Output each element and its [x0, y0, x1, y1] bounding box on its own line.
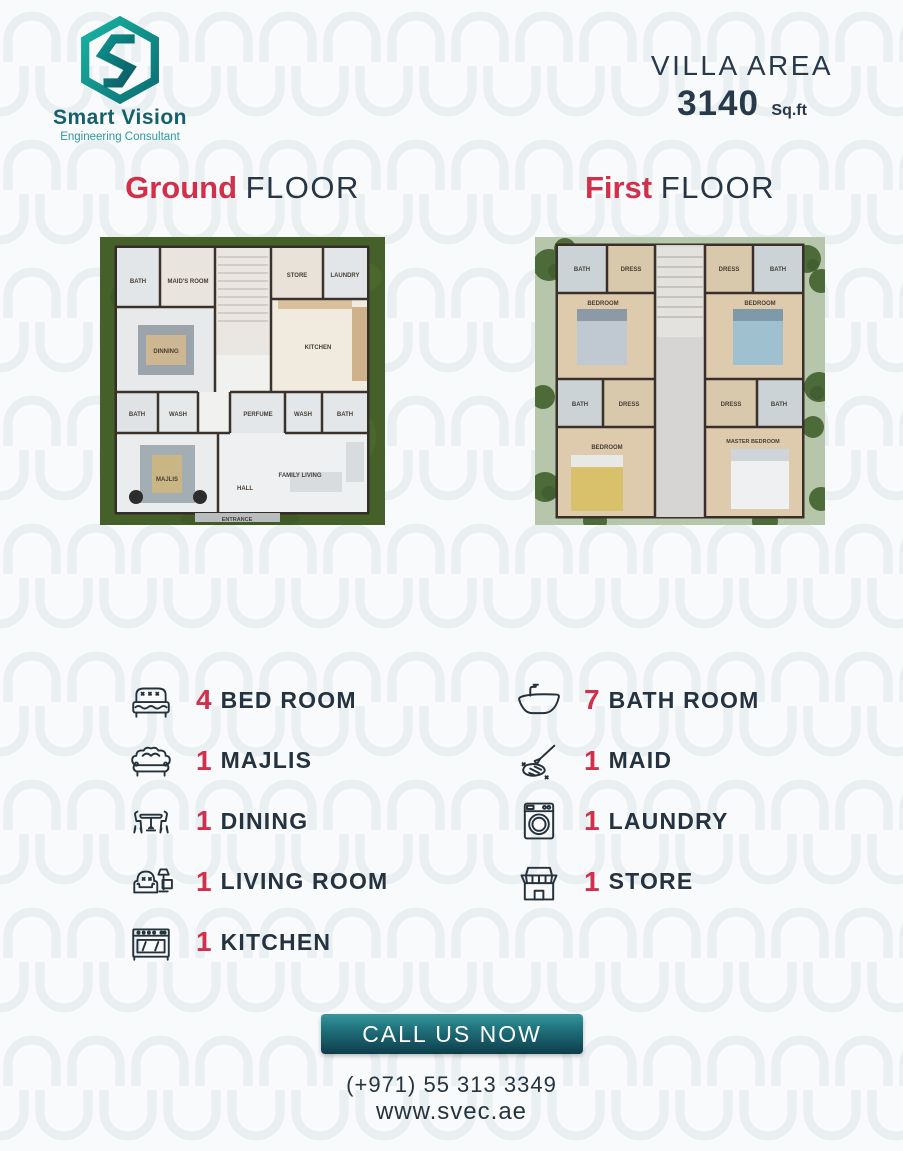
feature-label: DINING: [221, 808, 309, 835]
room-label: WASH: [294, 412, 312, 418]
brand-name: Smart Vision: [30, 106, 210, 130]
feature-count: 1: [196, 805, 212, 837]
room-label: BATH: [574, 267, 590, 273]
first-floor-plan: BATH DRESS DRESS BATH BEDROOM BEDROOM BA…: [535, 237, 825, 525]
room-label: MASTER BEDROOM: [726, 439, 780, 445]
room-label: KITCHEN: [305, 345, 332, 351]
feature-count: 1: [584, 805, 600, 837]
villa-area-block: VILLA AREA 3140 Sq.ft: [612, 50, 872, 124]
smart-vision-logo-icon: [74, 16, 166, 104]
room-label: BATH: [771, 402, 787, 408]
feature-count: 1: [196, 745, 212, 777]
feature-count: 1: [196, 866, 212, 898]
room-label: BATH: [337, 412, 353, 418]
company-logo-block: Smart Vision Engineering Consultant: [30, 16, 210, 143]
feature-majlis: 1 MAJLIS: [126, 731, 476, 792]
storefront-icon: [514, 858, 564, 906]
room-label: MAID'S ROOM: [167, 279, 208, 285]
feature-label: BATH ROOM: [609, 687, 760, 714]
dining-table-icon: [126, 797, 176, 845]
room-label: PERFUME: [243, 412, 272, 418]
room-label: BATH: [572, 402, 588, 408]
feature-bedroom: 4 BED ROOM: [126, 670, 476, 731]
call-us-now-button[interactable]: CALL US NOW: [321, 1014, 583, 1054]
room-label: MAJLIS: [156, 477, 178, 483]
feature-dining: 1 DINING: [126, 791, 476, 852]
sofa-icon: [126, 737, 176, 785]
room-label: BEDROOM: [591, 445, 622, 451]
feature-count: 1: [584, 745, 600, 777]
room-label: BEDROOM: [744, 301, 775, 307]
room-label: STORE: [287, 273, 308, 279]
feature-label: STORE: [609, 868, 694, 895]
feature-count: 7: [584, 684, 600, 716]
villa-area-unit: Sq.ft: [771, 102, 807, 119]
room-label: DRESS: [721, 402, 742, 408]
washing-machine-icon: [514, 797, 564, 845]
feature-count: 1: [584, 866, 600, 898]
room-label: DRESS: [621, 267, 642, 273]
room-label: DRESS: [719, 267, 740, 273]
feature-count: 1: [196, 926, 212, 958]
armchair-tv-icon: [126, 858, 176, 906]
first-floor-heading: First FLOOR: [535, 170, 825, 206]
feature-label: BED ROOM: [221, 687, 357, 714]
feature-maid: 1 MAID: [514, 731, 864, 792]
feature-laundry: 1 LAUNDRY: [514, 791, 864, 852]
ground-floor-heading: Ground FLOOR: [100, 170, 385, 206]
room-label: ENTRANCE: [222, 517, 253, 523]
room-label: HALL: [237, 486, 253, 492]
room-label: FAMILY LIVING: [278, 473, 321, 479]
ground-floor-plan: BATH MAID'S ROOM STORE LAUNDRY KITCHEN D…: [100, 237, 385, 525]
feature-kitchen: 1 KITCHEN: [126, 912, 476, 973]
bed-icon: [126, 676, 176, 724]
room-label: DRESS: [619, 402, 640, 408]
room-label: BATH: [130, 279, 146, 285]
first-floor-heading-highlight: First: [585, 170, 652, 205]
features-left-column: 4 BED ROOM 1 MAJLIS: [126, 670, 476, 973]
ground-floor-heading-highlight: Ground: [125, 170, 237, 205]
stove-icon: [126, 918, 176, 966]
bathtub-icon: [514, 676, 564, 724]
features-right-column: 7 BATH ROOM 1 MAID: [514, 670, 864, 912]
feature-label: LAUNDRY: [609, 808, 729, 835]
room-label: BATH: [129, 412, 145, 418]
feature-bathroom: 7 BATH ROOM: [514, 670, 864, 731]
brand-tagline: Engineering Consultant: [30, 131, 210, 143]
website-url[interactable]: www.svec.ae: [0, 1098, 903, 1126]
ground-floor-heading-rest: FLOOR: [246, 170, 360, 205]
villa-area-number: 3140: [677, 84, 759, 123]
feature-label: MAID: [609, 747, 673, 774]
room-label: LAUNDRY: [330, 273, 359, 279]
villa-area-value: 3140 Sq.ft: [612, 84, 872, 124]
cleaning-icon: [514, 737, 564, 785]
room-label: BEDROOM: [587, 301, 618, 307]
feature-store: 1 STORE: [514, 852, 864, 913]
room-label: WASH: [169, 412, 187, 418]
room-label: BATH: [770, 267, 786, 273]
villa-area-label: VILLA AREA: [612, 50, 872, 82]
phone-number[interactable]: (+971) 55 313 3349: [0, 1072, 903, 1098]
feature-count: 4: [196, 684, 212, 716]
feature-label: LIVING ROOM: [221, 868, 389, 895]
room-label: DINNING: [153, 349, 179, 355]
feature-label: MAJLIS: [221, 747, 313, 774]
feature-label: KITCHEN: [221, 929, 332, 956]
first-floor-heading-rest: FLOOR: [661, 170, 775, 205]
feature-living-room: 1 LIVING ROOM: [126, 852, 476, 913]
